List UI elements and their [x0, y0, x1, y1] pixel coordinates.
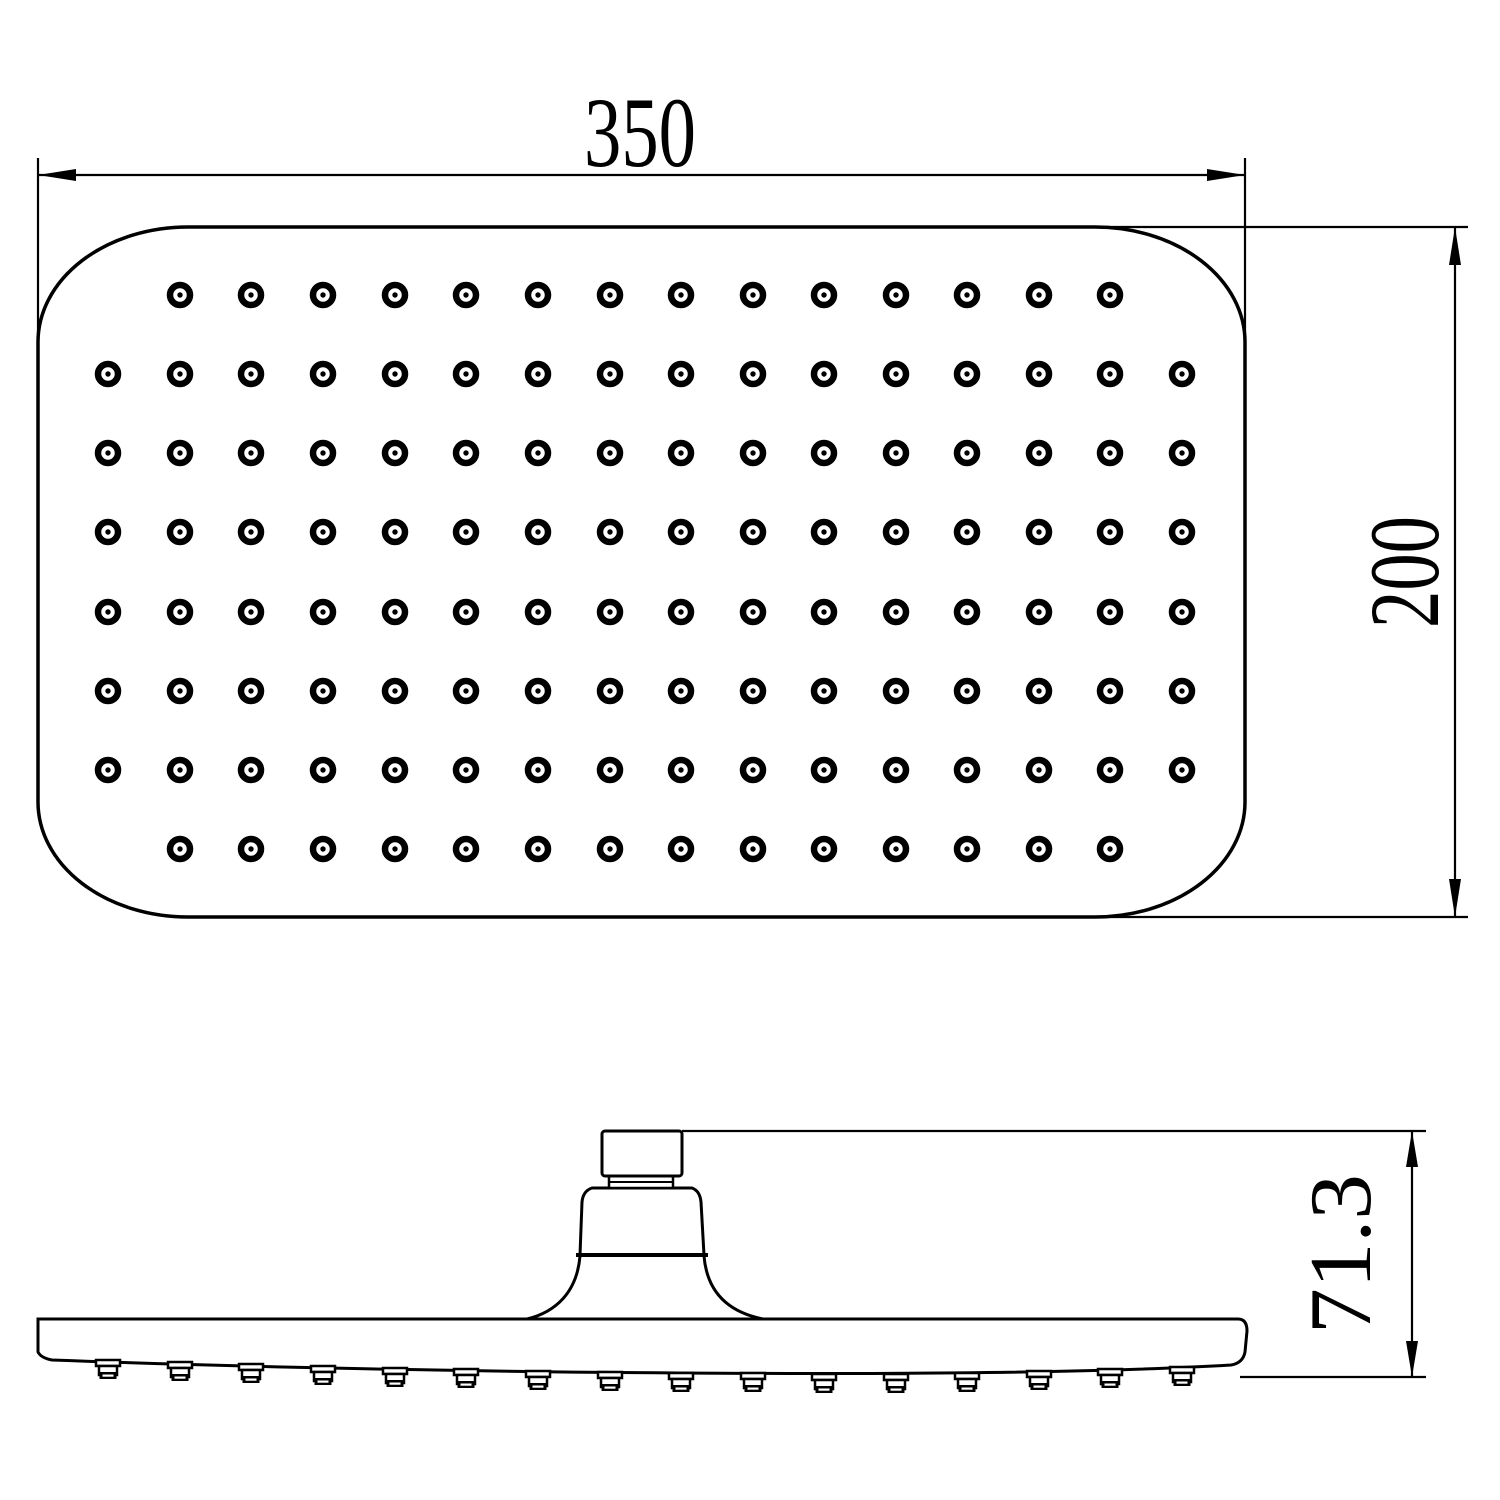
spray-hole-center-dot [105, 609, 110, 614]
top-view [38, 227, 1245, 917]
connector-bell [527, 1256, 580, 1319]
spray-hole-center-dot [535, 846, 540, 851]
spray-hole-center-dot [248, 371, 253, 376]
spray-hole-center-dot [105, 450, 110, 455]
spray-hole-center-dot [177, 450, 182, 455]
spray-hole-center-dot [1107, 450, 1112, 455]
spray-hole-center-dot [535, 292, 540, 297]
spray-hole-center-dot [463, 371, 468, 376]
spray-hole-center-dot [1036, 609, 1041, 614]
spray-hole-center-dot [248, 767, 253, 772]
spray-hole-center-dot [463, 609, 468, 614]
spray-hole-center-dot [893, 688, 898, 693]
dimension-width-label: 350 [584, 77, 696, 188]
spray-hole-center-dot [821, 529, 826, 534]
spray-hole-center-dot [607, 529, 612, 534]
spray-hole-center-dot [105, 767, 110, 772]
spray-hole-center-dot [607, 292, 612, 297]
nozzle-tip-slot [246, 1379, 257, 1381]
arrowhead-up [1406, 1131, 1418, 1167]
spray-hole-center-dot [177, 609, 182, 614]
spray-hole-center-dot [893, 450, 898, 455]
drawing-sheet: 350 200 71.3 [0, 0, 1500, 1500]
spray-hole-center-dot [678, 846, 683, 851]
spray-hole-center-dot [750, 688, 755, 693]
spray-hole-center-dot [893, 292, 898, 297]
spray-hole-center-dot [1036, 846, 1041, 851]
connector-inlet-block [602, 1131, 682, 1176]
spray-hole-center-dot [463, 767, 468, 772]
spray-hole-center-dot [248, 529, 253, 534]
spray-hole-center-dot [248, 846, 253, 851]
spray-hole-center-dot [607, 609, 612, 614]
spray-hole-center-dot [607, 846, 612, 851]
nozzle-tip-slot [605, 1387, 616, 1389]
arrowhead-up [1449, 227, 1461, 265]
spray-hole-center-dot [463, 846, 468, 851]
spray-hole-center-dot [1179, 609, 1184, 614]
spray-hole-center-dot [105, 529, 110, 534]
spray-hole-center-dot [1107, 371, 1112, 376]
spray-hole-center-dot [750, 292, 755, 297]
spray-hole-center-dot [964, 846, 969, 851]
connector-body [580, 1188, 704, 1255]
spray-hole-center-dot [893, 846, 898, 851]
spray-hole-center-dot [1036, 450, 1041, 455]
nozzle-tip-slot [819, 1389, 830, 1391]
spray-hole-center-dot [392, 371, 397, 376]
spray-hole-center-dot [893, 767, 898, 772]
spray-hole-center-dot [463, 529, 468, 534]
spray-hole-center-dot [893, 529, 898, 534]
nozzle-tip-slot [318, 1381, 329, 1383]
spray-hole-center-dot [1107, 292, 1112, 297]
spray-hole-center-dot [248, 609, 253, 614]
arrowhead-right [1207, 169, 1245, 181]
spray-hole-center-dot [177, 846, 182, 851]
spray-hole-center-dot [750, 371, 755, 376]
spray-hole-center-dot [177, 529, 182, 534]
spray-hole-center-dot [964, 292, 969, 297]
spray-hole-center-dot [1107, 609, 1112, 614]
nozzle-tip-slot [748, 1388, 759, 1390]
spray-hole-center-dot [535, 450, 540, 455]
spray-hole-center-dot [1179, 767, 1184, 772]
spray-hole-center-dot [750, 846, 755, 851]
spray-hole-center-dot [964, 767, 969, 772]
arrowhead-down [1406, 1341, 1418, 1377]
spray-hole-center-dot [821, 609, 826, 614]
spray-hole-center-dot [750, 450, 755, 455]
nozzle-tip-slot [891, 1389, 902, 1391]
spray-hole-center-dot [607, 767, 612, 772]
spray-hole-center-dot [607, 450, 612, 455]
spray-hole-center-dot [177, 371, 182, 376]
spray-hole-center-dot [1107, 529, 1112, 534]
dimension-side-height-label: 71.3 [1293, 1174, 1390, 1334]
arrowhead-left [38, 169, 76, 181]
spray-hole-center-dot [1107, 688, 1112, 693]
spray-hole-center-dot [248, 688, 253, 693]
spray-hole-center-dot [821, 767, 826, 772]
spray-hole-center-dot [320, 609, 325, 614]
spray-hole-center-dot [678, 688, 683, 693]
spray-hole-center-dot [893, 371, 898, 376]
spray-hole-center-dot [320, 767, 325, 772]
spray-hole-center-dot [320, 450, 325, 455]
spray-hole-center-dot [392, 609, 397, 614]
spray-hole-center-dot [678, 292, 683, 297]
spray-hole-center-dot [1036, 529, 1041, 534]
spray-hole-center-dot [392, 846, 397, 851]
spray-hole-center-dot [320, 529, 325, 534]
spray-hole-center-dot [678, 609, 683, 614]
spray-hole-center-dot [392, 450, 397, 455]
spray-hole-center-dot [821, 371, 826, 376]
spray-hole-center-dot [392, 767, 397, 772]
spray-hole-center-dot [607, 371, 612, 376]
spray-hole-center-dot [607, 688, 612, 693]
spray-hole-center-dot [320, 371, 325, 376]
spray-hole-center-dot [1036, 292, 1041, 297]
spray-hole-center-dot [678, 529, 683, 534]
nozzle-tip-slot [962, 1388, 973, 1390]
spray-hole-center-dot [678, 767, 683, 772]
spray-hole-center-dot [248, 292, 253, 297]
spray-hole-center-dot [392, 292, 397, 297]
spray-hole-center-dot [750, 529, 755, 534]
spray-hole-center-dot [893, 609, 898, 614]
dimension-height-label: 200 [1349, 516, 1460, 628]
nozzle-tip-slot [461, 1384, 472, 1386]
nozzle-tip-slot [1105, 1384, 1116, 1386]
spray-hole-center-dot [535, 688, 540, 693]
spray-hole-center-dot [1107, 767, 1112, 772]
spray-hole-center-dot [248, 450, 253, 455]
connector-bell [704, 1256, 763, 1319]
nozzle-tip-slot [175, 1377, 186, 1379]
spray-hole-center-dot [678, 450, 683, 455]
nozzle-tip-slot [390, 1383, 401, 1385]
spray-hole-center-dot [320, 846, 325, 851]
spray-hole-center-dot [964, 609, 969, 614]
shower-head-outline [38, 227, 1245, 917]
spray-hole-center-dot [463, 450, 468, 455]
nozzle-tip-slot [103, 1375, 114, 1377]
spray-hole-center-dot [821, 846, 826, 851]
spray-hole-center-dot [1036, 767, 1041, 772]
spray-hole-center-dot [1179, 529, 1184, 534]
spray-hole-center-dot [392, 688, 397, 693]
spray-hole-center-dot [1179, 450, 1184, 455]
spray-hole-center-dot [964, 450, 969, 455]
spray-hole-center-dot [177, 688, 182, 693]
spray-hole-center-dot [1036, 688, 1041, 693]
spray-hole-center-dot [392, 529, 397, 534]
spray-hole-center-dot [105, 688, 110, 693]
spray-hole-center-dot [678, 371, 683, 376]
spray-hole-center-dot [535, 529, 540, 534]
spray-hole-center-dot [821, 450, 826, 455]
spray-hole-center-dot [1036, 371, 1041, 376]
spray-hole-center-dot [463, 688, 468, 693]
nozzle-tip-slot [1034, 1386, 1045, 1388]
spray-hole-center-dot [1107, 846, 1112, 851]
spray-hole-center-dot [821, 292, 826, 297]
spray-hole-center-dot [964, 688, 969, 693]
arrowhead-down [1449, 879, 1461, 917]
technical-drawing-canvas: 350 200 71.3 [0, 0, 1500, 1500]
spray-hole-center-dot [463, 292, 468, 297]
nozzle-tip-slot [533, 1386, 544, 1388]
nozzle-tip-slot [676, 1388, 687, 1390]
spray-hole-center-dot [177, 292, 182, 297]
spray-hole-center-dot [320, 292, 325, 297]
spray-hole-center-dot [750, 609, 755, 614]
spray-hole-center-dot [964, 529, 969, 534]
spray-hole-center-dot [177, 767, 182, 772]
spray-hole-center-dot [105, 371, 110, 376]
spray-hole-center-dot [964, 371, 969, 376]
spray-hole-center-dot [821, 688, 826, 693]
spray-hole-center-dot [1179, 371, 1184, 376]
head-slab-profile [38, 1319, 1247, 1373]
spray-hole-center-dot [535, 767, 540, 772]
spray-hole-center-dot [535, 609, 540, 614]
spray-hole-center-dot [1179, 688, 1184, 693]
spray-hole-center-dot [535, 371, 540, 376]
side-view [38, 1131, 1247, 1393]
spray-hole-center-dot [320, 688, 325, 693]
nozzle-tip-slot [1177, 1382, 1188, 1384]
spray-hole-center-dot [750, 767, 755, 772]
